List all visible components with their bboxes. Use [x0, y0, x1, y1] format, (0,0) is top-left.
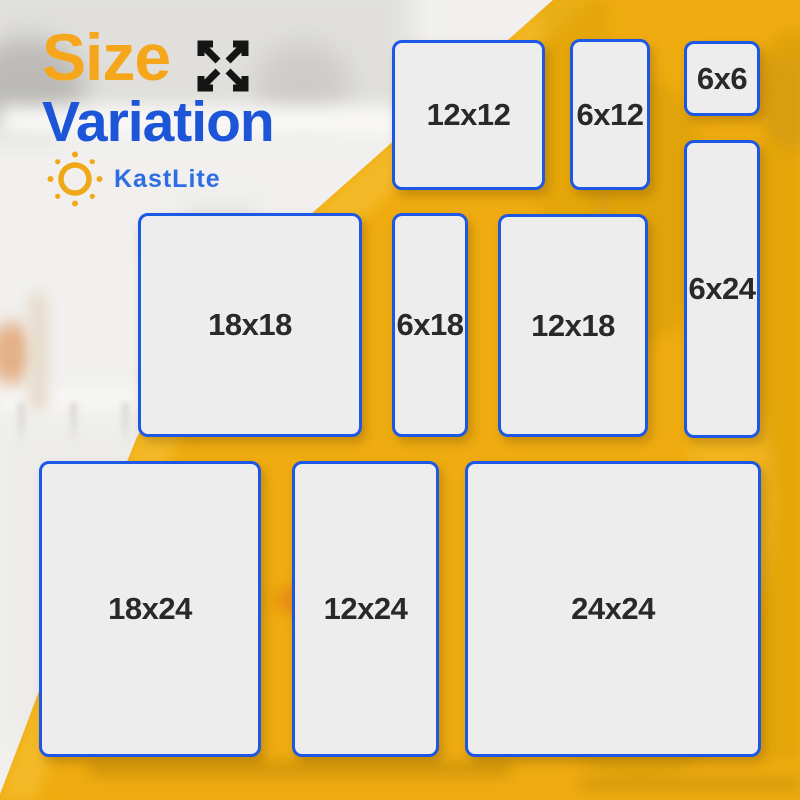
size-label: 12x24 — [324, 591, 408, 627]
size-label: 6x12 — [577, 97, 644, 133]
brand-name: KastLite — [114, 165, 221, 194]
size-label: 12x12 — [427, 97, 511, 133]
brand-logo: KastLite — [46, 150, 221, 208]
size-tile-6x6: 6x6 — [684, 41, 760, 116]
size-tile-12x24: 12x24 — [292, 461, 439, 757]
size-label: 18x24 — [108, 591, 192, 627]
size-tile-12x18: 12x18 — [498, 214, 648, 437]
size-label: 18x18 — [208, 307, 292, 343]
size-label: 6x24 — [689, 271, 756, 307]
sun-icon — [46, 150, 104, 208]
size-tile-6x24: 6x24 — [684, 140, 760, 438]
size-tile-6x18: 6x18 — [392, 213, 468, 437]
size-label: 6x18 — [397, 307, 464, 343]
size-label: 6x6 — [697, 61, 747, 97]
expand-arrows-icon — [193, 36, 253, 96]
size-tile-6x12: 6x12 — [570, 39, 650, 190]
size-label: 24x24 — [571, 591, 655, 627]
product-size-infographic: Size Variation KastLite — [0, 0, 800, 800]
size-label: 12x18 — [531, 308, 615, 344]
size-tile-12x12: 12x12 — [392, 40, 545, 190]
size-tile-18x18: 18x18 — [138, 213, 362, 437]
size-tile-18x24: 18x24 — [39, 461, 261, 757]
title-line-variation: Variation — [42, 94, 274, 151]
size-tile-24x24: 24x24 — [465, 461, 761, 757]
